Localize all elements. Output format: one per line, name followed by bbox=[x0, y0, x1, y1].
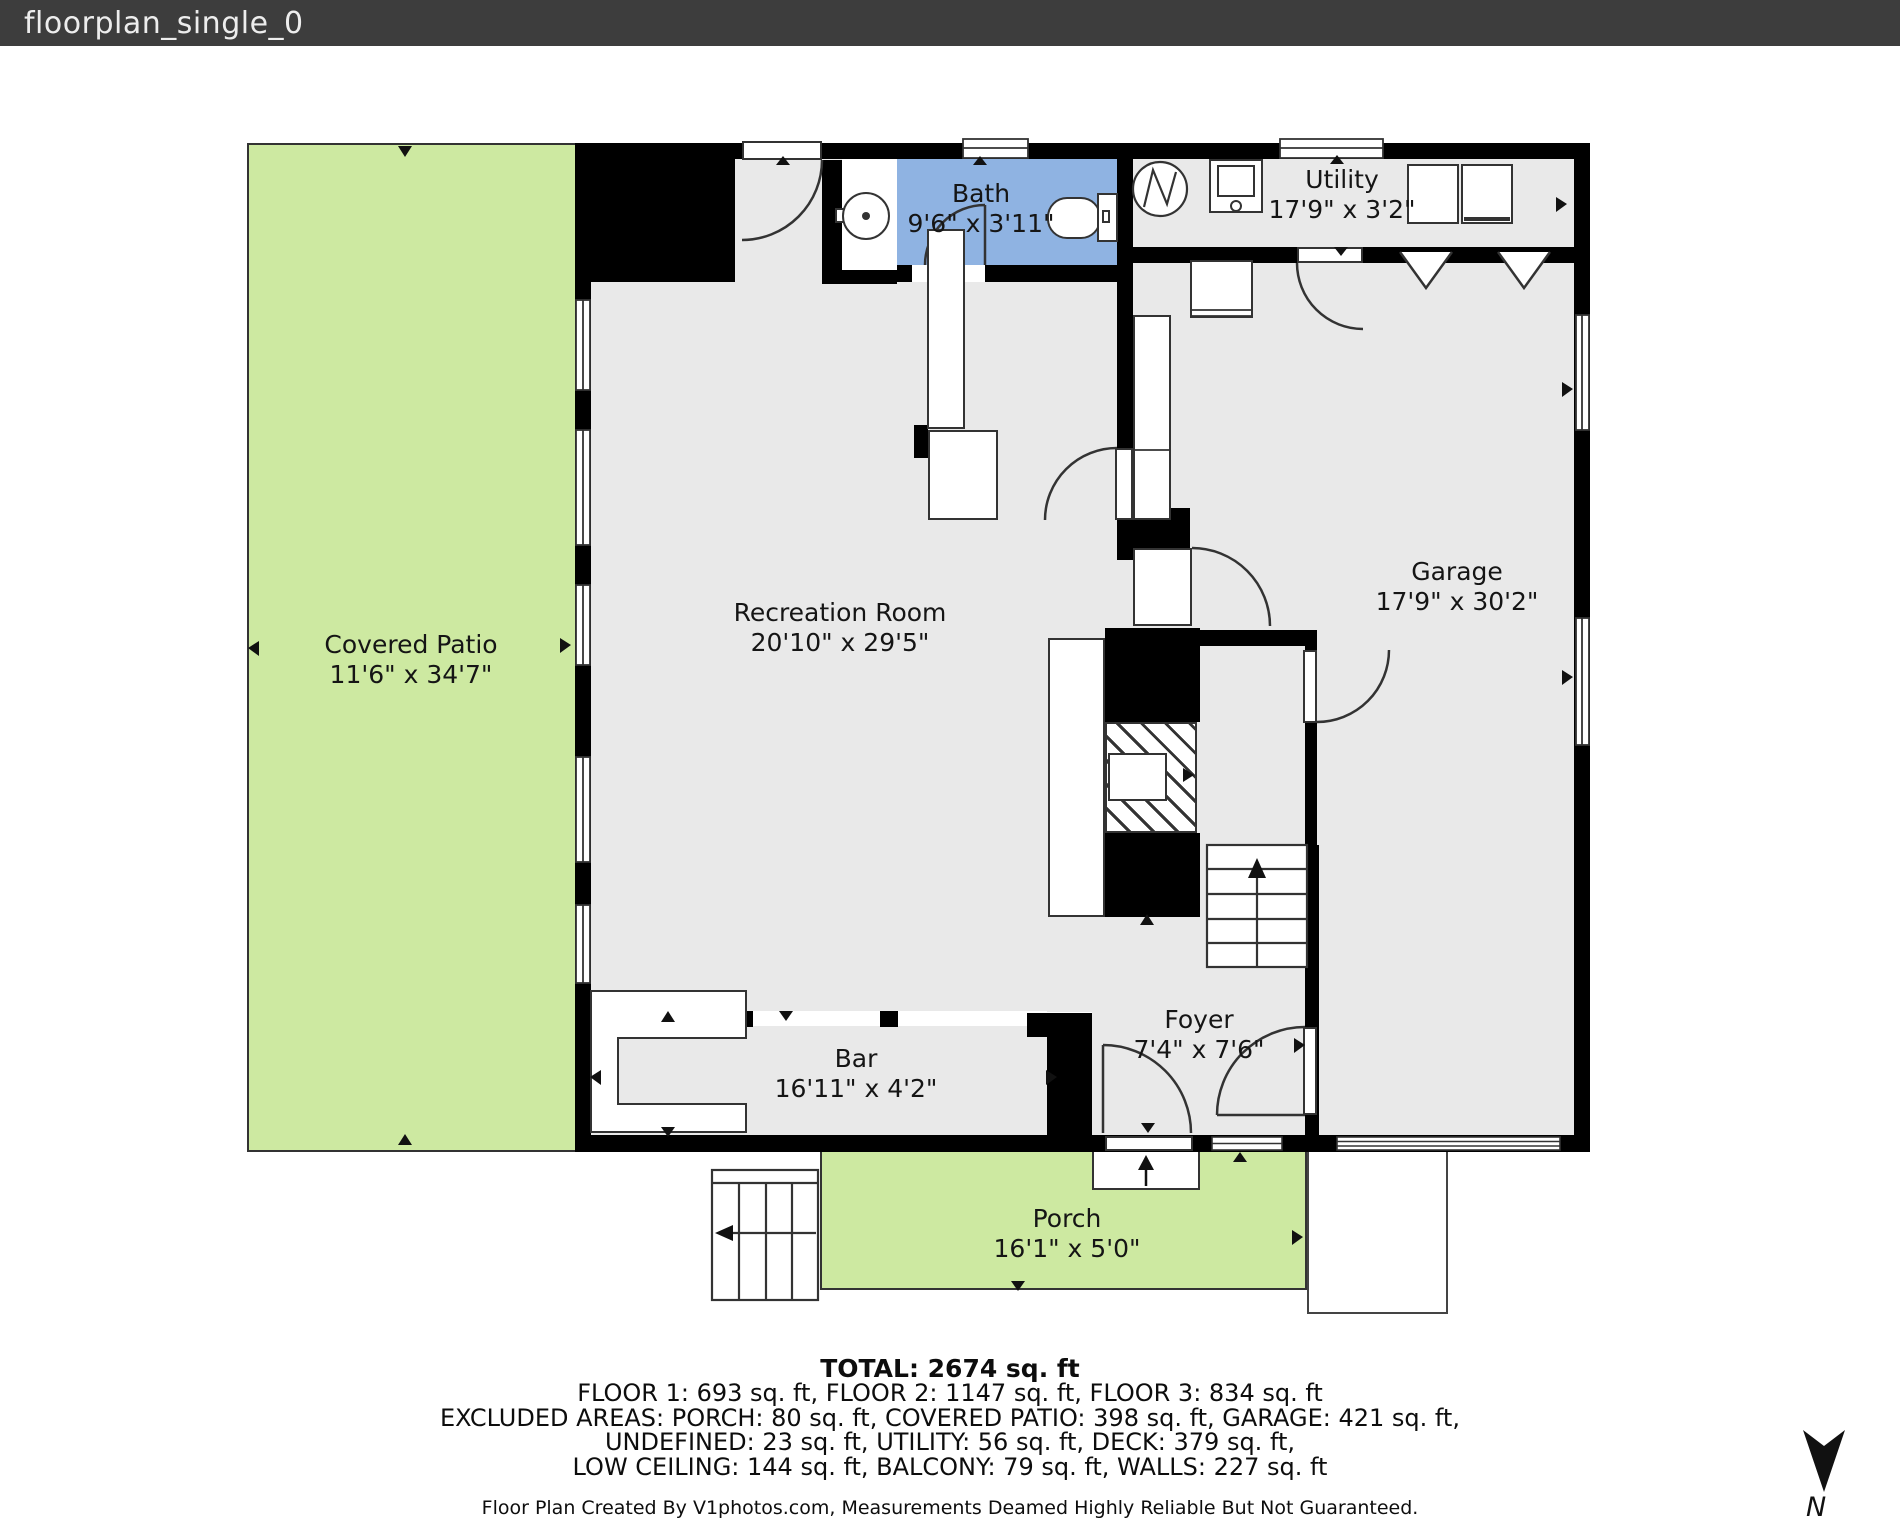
room-name: Covered Patio bbox=[324, 630, 497, 660]
title-bar: floorplan_single_0 bbox=[0, 0, 1900, 46]
room-name: Foyer bbox=[1133, 1005, 1264, 1035]
summary-excluded-3: LOW CEILING: 144 sq. ft, BALCONY: 79 sq.… bbox=[0, 1455, 1900, 1480]
wall-corridor-top bbox=[1200, 630, 1317, 646]
room-dims: 16'1" x 5'0" bbox=[994, 1234, 1141, 1264]
page-title: floorplan_single_0 bbox=[24, 6, 304, 41]
label-bar: Bar 16'11" x 4'2" bbox=[775, 1044, 938, 1104]
outdoor-stairs bbox=[712, 1170, 818, 1300]
label-porch: Porch 16'1" x 5'0" bbox=[994, 1204, 1141, 1264]
label-covered-patio: Covered Patio 11'6" x 34'7" bbox=[324, 630, 497, 690]
wall-bar-right-corner bbox=[1027, 1013, 1057, 1037]
fireplace-insert bbox=[1108, 753, 1167, 801]
label-bath: Bath 9'6" x 3'11" bbox=[908, 179, 1055, 239]
bath-vestibule-floor bbox=[842, 159, 897, 270]
chimney-block-bottom bbox=[1105, 833, 1200, 917]
closet-nook bbox=[928, 430, 998, 520]
utility-garage-door-leaf bbox=[1297, 247, 1363, 263]
room-dims: 9'6" x 3'11" bbox=[908, 209, 1055, 239]
label-garage: Garage 17'9" x 30'2" bbox=[1376, 557, 1539, 617]
room-dims: 17'9" x 30'2" bbox=[1376, 587, 1539, 617]
room-dims: 11'6" x 34'7" bbox=[324, 660, 497, 690]
chimney-block-top bbox=[1105, 628, 1200, 722]
wall-vestibule-bottom bbox=[822, 270, 897, 284]
wall-left bbox=[575, 143, 591, 1152]
counter bbox=[1048, 638, 1105, 917]
room-name: Porch bbox=[994, 1204, 1141, 1234]
room-dims: 20'10" x 29'5" bbox=[734, 628, 947, 658]
room-dims: 7'4" x 7'6" bbox=[1133, 1035, 1264, 1065]
room-name: Bar bbox=[775, 1044, 938, 1074]
room-name: Utility bbox=[1269, 165, 1416, 195]
label-recreation-room: Recreation Room 20'10" x 29'5" bbox=[734, 598, 947, 658]
label-foyer: Foyer 7'4" x 7'6" bbox=[1133, 1005, 1264, 1065]
nook-door-leaf bbox=[1115, 448, 1133, 520]
wall-vestibule-left bbox=[822, 160, 842, 282]
label-utility: Utility 17'9" x 3'2" bbox=[1269, 165, 1416, 225]
summary-excluded-1: EXCLUDED AREAS: PORCH: 80 sq. ft, COVERE… bbox=[0, 1406, 1900, 1431]
room-name: Bath bbox=[908, 179, 1055, 209]
bar-counter-notch bbox=[617, 1037, 747, 1105]
corridor-floor bbox=[1200, 646, 1307, 845]
corridor-garage-door-leaf bbox=[1303, 650, 1317, 723]
wall-nook-stub bbox=[914, 425, 928, 458]
area-summary: TOTAL: 2674 sq. ft FLOOR 1: 693 sq. ft, … bbox=[0, 1356, 1900, 1519]
garage-appliance bbox=[1190, 260, 1253, 318]
wall-void-top-left bbox=[575, 143, 735, 282]
foyer-garage-door-leaf bbox=[1303, 1027, 1317, 1115]
closet-mid bbox=[1133, 548, 1192, 626]
garage-shelf bbox=[1133, 315, 1171, 520]
room-name: Recreation Room bbox=[734, 598, 947, 628]
wall-bar-seg2 bbox=[880, 1011, 898, 1027]
wall-right bbox=[1574, 143, 1590, 1152]
room-dims: 16'11" x 4'2" bbox=[775, 1074, 938, 1104]
porch-door-leaf bbox=[1105, 1136, 1193, 1151]
summary-total: TOTAL: 2674 sq. ft bbox=[0, 1356, 1900, 1381]
floorplan-canvas: Covered Patio 11'6" x 34'7" Bath 9'6" x … bbox=[0, 0, 1900, 1535]
summary-floors: FLOOR 1: 693 sq. ft, FLOOR 2: 1147 sq. f… bbox=[0, 1381, 1900, 1406]
room-dims: 17'9" x 3'2" bbox=[1269, 195, 1416, 225]
wall-bottom bbox=[575, 1135, 1590, 1152]
summary-disclaimer: Floor Plan Created By V1photos.com, Meas… bbox=[0, 1497, 1900, 1519]
side-stoop bbox=[1307, 1152, 1448, 1314]
bath-door-gap bbox=[912, 265, 985, 282]
summary-excluded-2: UNDEFINED: 23 sq. ft, UTILITY: 56 sq. ft… bbox=[0, 1430, 1900, 1455]
porch-landing bbox=[1092, 1152, 1200, 1190]
room-name: Garage bbox=[1376, 557, 1539, 587]
rec-entry-door-leaf bbox=[742, 141, 822, 160]
